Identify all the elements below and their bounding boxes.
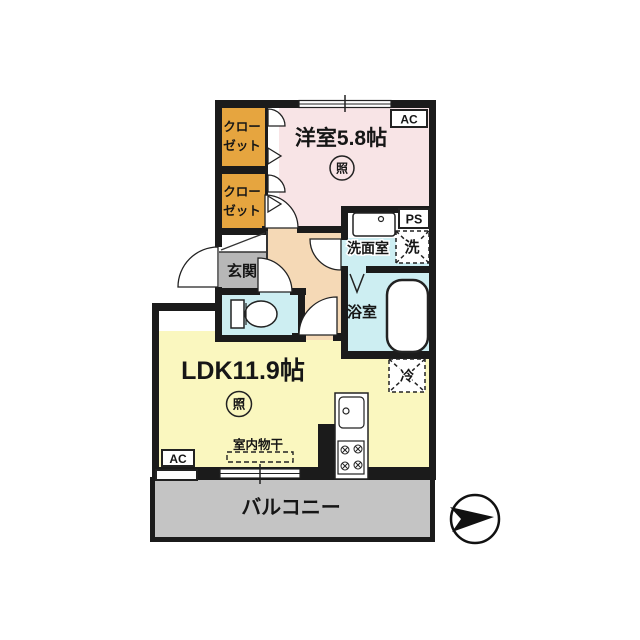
- bathtub-icon: [387, 280, 428, 352]
- faucet-icon: [343, 408, 349, 414]
- label-washer: 洗: [404, 238, 419, 256]
- label-ac-ldk: AC: [169, 452, 187, 466]
- label-washroom: 洗面室: [347, 240, 389, 256]
- floor-plan-image: 洋室5.8帖 LDK11.9帖 バルコニー 玄関 洗面室 浴室 洗 冷 クロー …: [0, 0, 640, 640]
- label-light-ldk: 照: [233, 397, 246, 412]
- label-bathroom: 浴室: [347, 303, 377, 321]
- label-closet2-line2: ゼット: [223, 203, 261, 218]
- label-western-room: 洋室5.8帖: [295, 126, 387, 150]
- label-fridge: 冷: [400, 368, 414, 384]
- toilet-icon: [231, 300, 277, 328]
- label-light-western: 照: [336, 161, 348, 176]
- closet-2: [219, 170, 266, 230]
- front-door-swing-icon: [178, 247, 218, 287]
- floor-plan-page: 洋室5.8帖 LDK11.9帖 バルコニー 玄関 洗面室 浴室 洗 冷 クロー …: [0, 0, 640, 640]
- label-ldk: LDK11.9帖: [181, 357, 305, 385]
- label-closet1-line2: ゼット: [223, 138, 261, 153]
- label-balcony: バルコニー: [241, 496, 341, 519]
- label-ps: PS: [406, 213, 423, 227]
- label-ac-western: AC: [400, 113, 418, 127]
- label-closet1-line1: クロー: [223, 120, 261, 134]
- label-indoor-drying: 室内物干: [233, 437, 284, 452]
- north-arrow-icon: [450, 495, 499, 543]
- label-closet2-line1: クロー: [223, 185, 261, 199]
- kitchen-counter-icon: [335, 393, 368, 479]
- label-entrance: 玄関: [227, 262, 257, 280]
- closet-1: [219, 104, 266, 168]
- vanity-sink-icon: [353, 213, 395, 236]
- window-low-left-icon: [156, 470, 197, 480]
